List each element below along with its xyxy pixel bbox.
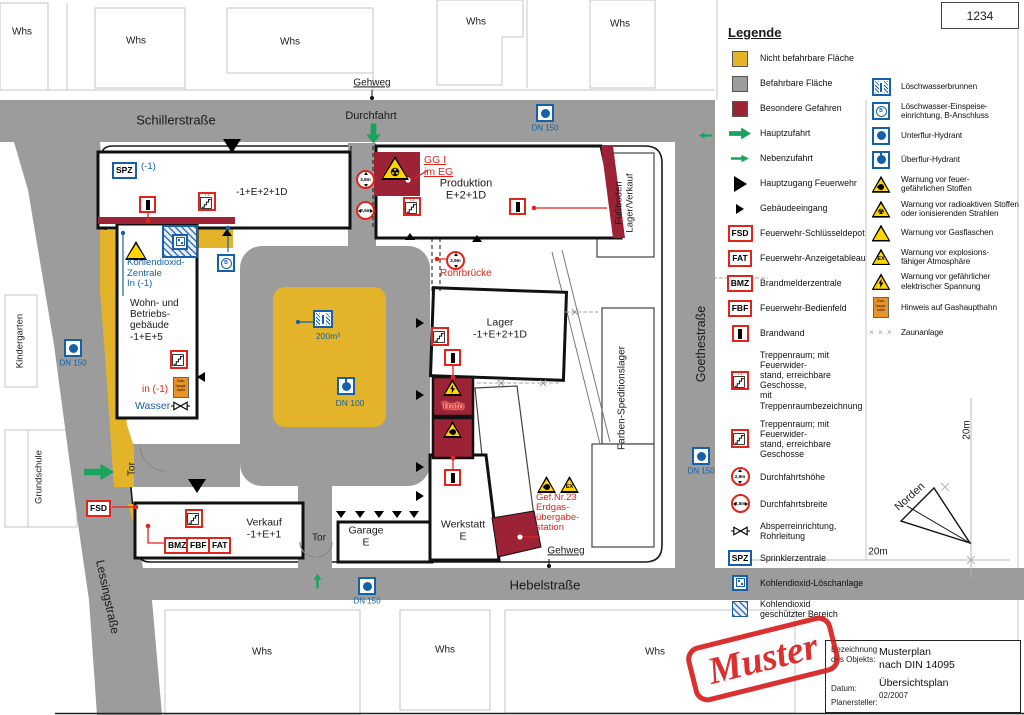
legend-item: EXWarnung vor explosions- fähiger Atmosp…: [868, 248, 1024, 267]
warehouse-label: Whs: [126, 35, 146, 46]
legend-label: Kohlendioxid-Löschanlage: [760, 578, 863, 588]
legend-item: BLöschwasser-Einspeise- einrichtung, B-A…: [868, 102, 1024, 121]
secondary-access-arrow: [699, 126, 712, 144]
fire-wall-icon: [727, 325, 753, 342]
title-block: Bezeichnung des Objekts: Musterplan nach…: [825, 640, 1021, 713]
warehouse-label: Whs: [466, 16, 486, 27]
secondary-access-arrow-icon: [727, 154, 753, 164]
title-block-object-name: Musterplan nach DIN 14095: [879, 646, 955, 672]
scale-label: 20m: [961, 420, 972, 439]
title-block-date-label: Datum:: [831, 684, 857, 694]
legend-label: Absperreinrichtung, Rohrleitung: [760, 521, 836, 541]
shutoff-valve-icon: [727, 526, 753, 536]
explosion-warning-icon: EX: [868, 248, 894, 265]
fire-water-well-icon: [313, 310, 333, 329]
clearance-height-sign: 2,9m: [446, 249, 465, 270]
fire-alarm-centre-icon: BMZ: [727, 275, 753, 292]
legend-label: Durchfahrtsbreite: [760, 499, 827, 509]
legend-item: Nicht befahrbare Fläche: [727, 50, 873, 67]
warehouse-label: Whs: [645, 646, 665, 657]
main-access-arrow-tor: [84, 463, 114, 486]
staircase-icon: [727, 429, 753, 448]
legend-label: Warnung vor gefährlicher elektrischer Sp…: [901, 272, 990, 291]
legend-right-column: Löschwasserbrunnen BLöschwasser-Einspeis…: [868, 78, 1024, 347]
legend-label: Treppenraum; mit Feuerwider- stand, erre…: [760, 350, 873, 411]
legend-label: Überflur-Hydrant: [901, 155, 960, 164]
legend-item: Treppenraum; mit Feuerwider- stand, erre…: [727, 419, 873, 459]
clearance-width-sign: 3,5m: [356, 199, 375, 220]
co2-zentrale-label: Kohlendioxid- Zentrale In (-1): [127, 258, 185, 290]
durchfahrt-label: Durchfahrt: [345, 110, 396, 122]
b-connection-icon: B: [217, 251, 235, 272]
building-garage-label: Garage E: [348, 525, 383, 549]
building-entrance-icon: [727, 204, 753, 214]
legend-label: Feuerwehr-Anzeigetableau: [760, 253, 866, 263]
legend-label: Brandwand: [760, 328, 805, 338]
co2-extinguishing-icon: [727, 575, 753, 591]
legend-label: Kohlendioxid geschützter Bereich: [760, 599, 838, 619]
underground-hydrant-icon: [64, 339, 82, 358]
spz-level-label: (-1): [141, 162, 156, 173]
legend-item: Löschwasserbrunnen: [868, 78, 1024, 96]
title-block-planner-label: Planersteller:: [831, 698, 878, 708]
staircase-icon: [170, 350, 188, 374]
gas-cylinder-warning-icon: [868, 225, 894, 242]
underground-hydrant-icon: [692, 447, 710, 466]
legend-item: Hauptzufahrt: [727, 125, 873, 142]
legend-label: Hauptzugang Feuerwehr: [760, 178, 857, 188]
legend-label: Feuerwehr-Bedienfeld: [760, 303, 847, 313]
legend-item: Besondere Gefahren: [727, 100, 873, 117]
non-drivable-swatch: [727, 51, 753, 67]
legend-item: 2,9mDurchfahrtshöhe: [727, 467, 873, 486]
legend-item: T1Treppenraum; mit Feuerwider- stand, er…: [727, 350, 873, 411]
legend-label: Nicht befahrbare Fläche: [760, 53, 854, 63]
key-depot-icon: FSD: [727, 225, 753, 242]
trafo-label: Trafo: [442, 401, 464, 411]
tank-volume-label: 200m³: [316, 332, 340, 342]
legend-item: ☢Warnung vor radioaktiven Stoffen oder i…: [868, 200, 1024, 219]
underground-hydrant-icon: [536, 104, 554, 123]
underground-hydrant-icon: [868, 127, 894, 145]
warehouse-label: Whs: [610, 18, 630, 29]
fire-wall-icon: [444, 349, 461, 368]
legend-item: Gas- haupt- hahnHinweis auf Gashaupthahn: [868, 297, 1024, 318]
legend-item: Warnung vor gefährlicher elektrischer Sp…: [868, 272, 1024, 291]
building-wohngebaeude-label: Wohn- und Betriebs- gebäude -1+E+5: [130, 298, 179, 343]
clearance-height-sign: 3,8m: [356, 168, 375, 189]
hydrant-size-label: DN 150: [59, 360, 86, 369]
legend-label: Warnung vor radioaktiven Stoffen oder io…: [901, 200, 1019, 219]
legend-label: Hauptzufahrt: [760, 128, 810, 138]
fire-display-panel-icon: FAT: [727, 250, 753, 267]
legend-label: Hinweis auf Gashaupthahn: [901, 303, 997, 312]
staircase-icon: [431, 327, 449, 351]
legend-label: Gebäudeeingang: [760, 203, 828, 213]
fire-wall-icon: [139, 196, 156, 215]
above-ground-hydrant-icon: [337, 377, 355, 396]
building-werkstatt-label: Werkstatt E: [441, 519, 485, 543]
building-produktion-label: Produktion E+2+1D: [440, 178, 493, 203]
plan-number: 1234: [967, 9, 994, 23]
legend-item: BMZBrandmelderzentrale: [727, 275, 873, 292]
gehweg-label: Gehweg: [353, 77, 390, 88]
secondary-access-arrow: [310, 574, 328, 589]
building-fussboden-label: Fußboden Lager/Verkauf: [614, 173, 635, 232]
legend-item: FATFeuerwehr-Anzeigetableau: [727, 250, 873, 267]
legend-label: Warnung vor explosions- fähiger Atmosphä…: [901, 248, 989, 267]
fire-control-panel-icon: FBF: [186, 535, 211, 554]
tor-label: Tor: [126, 462, 137, 476]
pipe-bridge-label: Rohrbrücke: [440, 268, 492, 279]
fire-warning-icon: [443, 421, 462, 443]
legend-title: Legende: [728, 26, 781, 41]
legend-item: Kohlendioxid-Löschanlage: [727, 574, 873, 591]
legend-item: Überflur-Hydrant: [868, 151, 1024, 169]
sprinkler-centre-icon: SPZ: [727, 550, 753, 567]
gas-tap-level-label: in (-1): [142, 384, 168, 395]
building-farben-label: Farben-Speditionslager: [616, 346, 627, 450]
legend-label: Feuerwehr-Schlüsseldepot: [760, 228, 865, 238]
fire-wall-icon: [444, 469, 461, 488]
staircase-icon: [185, 509, 203, 533]
underground-hydrant-icon: [358, 577, 376, 596]
hazard-gg-label: GG I im EG: [424, 155, 453, 179]
staircase-icon: T1: [198, 192, 216, 216]
legend-left-column: Nicht befahrbare Fläche Befahrbare Fläch…: [727, 50, 873, 628]
staircase-icon: T2: [403, 197, 421, 221]
legend-item: Gebäudeeingang: [727, 200, 873, 217]
hydrant-size-label: DN 100: [336, 399, 365, 409]
legend-item: Absperreinrichtung, Rohrleitung: [727, 521, 873, 541]
legend-item: 3,5mDurchfahrtsbreite: [727, 494, 873, 513]
warehouse-label: Whs: [435, 644, 455, 655]
legend-label: Unterflur-Hydrant: [901, 131, 962, 140]
legend-label: Brandmelderzentrale: [760, 278, 842, 288]
legend-item: Unterflur-Hydrant: [868, 127, 1024, 145]
legend-label: Löschwasser-Einspeise- einrichtung, B-An…: [901, 102, 989, 121]
hydrant-size-label: DN 150: [353, 598, 380, 607]
radioactive-warning-icon: ☢: [868, 201, 894, 218]
gas-main-tap-icon: Gas- haupt- hahn: [173, 377, 189, 398]
legend-item: FSDFeuerwehr-Schlüsseldepot: [727, 225, 873, 242]
main-access-arrow-icon: [727, 127, 753, 140]
building-levels-label: -1+E+2+1D: [236, 187, 287, 198]
legend-item: Hauptzugang Feuerwehr: [727, 175, 873, 192]
staircase-labelled-icon: T1: [727, 371, 753, 390]
key-depot-icon: FSD: [86, 498, 111, 517]
clearance-width-sign: 3,5m: [727, 494, 753, 513]
co2-protected-swatch: [727, 601, 753, 617]
legend-label: Befahrbare Fläche: [760, 78, 832, 88]
street-schillerstrasse: Schillerstraße: [136, 114, 215, 129]
hydrant-size-label: DN 150: [687, 468, 714, 477]
fire-brigade-entrance-icon: [727, 176, 753, 192]
electric-warning-icon: [868, 273, 894, 290]
main-access-arrow-durchfahrt: [361, 124, 382, 144]
warehouse-label: Whs: [280, 36, 300, 47]
legend-item: Warnung vor Gasflaschen: [868, 225, 1024, 242]
hazard-swatch: [727, 101, 753, 117]
legend-item: Warnung vor feuer- gefährlichen Stoffen: [868, 175, 1024, 194]
legend-label: Besondere Gefahren: [760, 103, 842, 113]
co2-protected-area: [162, 225, 198, 258]
warehouse-label: Whs: [252, 646, 272, 657]
electric-warning-icon: [443, 379, 462, 401]
building-lager-label: Lager -1+E+2+1D: [473, 317, 527, 341]
title-block-date: 02/2007: [879, 691, 908, 701]
title-block-plan-type: Übersichtsplan: [879, 677, 948, 690]
legend-label: Nebenzufahrt: [760, 153, 813, 163]
legend-item: × × ×Zaunanlage: [868, 324, 1024, 341]
fire-water-well-icon: [868, 78, 894, 96]
fence-icon: × × ×: [868, 328, 894, 337]
legend-item: Kohlendioxid geschützter Bereich: [727, 599, 873, 619]
above-ground-hydrant-icon: [868, 151, 894, 169]
legend-item: Nebenzufahrt: [727, 150, 873, 167]
building-verkauf-label: Verkauf -1+E+1: [246, 517, 282, 541]
parcel-grundschule: Grundschule: [35, 450, 46, 504]
radioactive-warning-icon: ☢: [381, 156, 409, 185]
warehouse-label: Whs: [12, 26, 32, 37]
street-hebelstrasse: Hebelstraße: [510, 579, 581, 594]
street-goethestrasse: Goethestraße: [694, 306, 708, 382]
hydrant-size-label: DN 150: [531, 125, 558, 134]
legend-item: Befahrbare Fläche: [727, 75, 873, 92]
water-shutoff-label: Wasser: [135, 401, 170, 413]
legend-item: FBFFeuerwehr-Bedienfeld: [727, 300, 873, 317]
legend-label: Löschwasserbrunnen: [901, 82, 977, 91]
legend-item: SPZSprinklerzentrale: [727, 549, 873, 566]
legend-label: Zaunanlage: [901, 328, 943, 337]
fire-warning-icon: [868, 176, 894, 193]
b-connection-icon: B: [868, 102, 894, 120]
fire-control-panel-icon: FBF: [727, 300, 753, 317]
legend-label: Warnung vor Gasflaschen: [901, 228, 993, 237]
parcel-kindergarten: Kindergarten: [16, 314, 27, 368]
gas-main-tap-icon: Gas- haupt- hahn: [868, 297, 894, 318]
shutoff-valve-icon: [171, 401, 190, 411]
plan-number-box: 1234: [941, 2, 1019, 29]
fire-display-panel-icon: FAT: [208, 535, 231, 554]
sprinkler-centre-icon: SPZ: [112, 160, 137, 179]
legend-label: Sprinklerzentrale: [760, 553, 826, 563]
gehweg-label: Gehweg: [547, 545, 584, 556]
legend-label: Durchfahrtshöhe: [760, 472, 825, 482]
drivable-swatch: [727, 76, 753, 92]
tor-label: Tor: [312, 532, 326, 543]
legend-label: Warnung vor feuer- gefährlichen Stoffen: [901, 175, 972, 194]
legend-label: Treppenraum; mit Feuerwider- stand, erre…: [760, 419, 873, 459]
legend-item: Brandwand: [727, 325, 873, 342]
gas-transfer-station-label: Gef.Nr.23 Erdgas- übergabe- station: [536, 493, 579, 533]
clearance-height-sign: 2,9m: [727, 467, 753, 486]
fire-wall-icon: [509, 198, 526, 217]
fire-brigade-site-plan: { "plan_number": "1234", "colors": { "no…: [0, 0, 1024, 715]
